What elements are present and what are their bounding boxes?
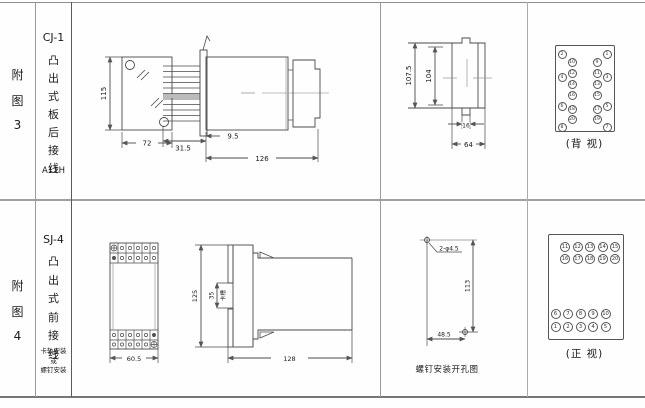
terminal-19: 19 — [593, 115, 602, 124]
terminal-11: 11 — [593, 69, 602, 78]
back-view-caption: (背 视) — [537, 136, 632, 151]
bottom-tab — [462, 108, 470, 115]
fig3-row-label-char: 附 — [11, 66, 23, 83]
slot-label: 卡槽 — [219, 290, 227, 302]
front-plate-upper — [228, 245, 233, 283]
dim-label-16: 16 — [462, 123, 470, 130]
wedge-hatch — [260, 252, 274, 338]
terminal-12: 12 — [573, 242, 583, 252]
terminal-14: 14 — [568, 80, 577, 89]
terminal-3: 3 — [603, 73, 612, 82]
terminal-14: 14 — [598, 242, 608, 252]
terminal-18: 18 — [568, 105, 577, 114]
fig3-row-label-char: 3 — [14, 118, 22, 132]
terminal-2: 2 — [563, 322, 573, 332]
dim-label-72: 72 — [143, 140, 152, 148]
dim-label-126: 126 — [255, 155, 269, 163]
dim-label-31.5: 31.5 — [175, 145, 191, 153]
terminal-16: 16 — [568, 91, 577, 100]
hole-spec-label: 2-φ4.5 — [439, 246, 459, 253]
terminal-18: 18 — [585, 254, 595, 264]
terminal-9: 9 — [593, 58, 602, 67]
dim-label-128: 128 — [283, 355, 295, 363]
section-outline — [408, 38, 485, 108]
front-view-caption: (正 视) — [537, 346, 632, 361]
fig4-row-label-char: 图 — [11, 303, 23, 320]
terminal-8: 8 — [558, 123, 567, 132]
dim-label-48.5: 48.5 — [437, 332, 451, 339]
terminal-5: 5 — [601, 322, 611, 332]
hatch-marks — [137, 70, 163, 108]
terminal-pins — [163, 66, 200, 121]
dim-label-104: 104 — [425, 69, 433, 83]
dim-label-115: 115 — [100, 87, 108, 100]
terminal-15: 15 — [593, 91, 602, 100]
terminal-1: 1 — [551, 322, 561, 332]
terminal-13: 13 — [593, 80, 602, 89]
terminal-2: 2 — [558, 50, 567, 59]
fig4-row-label-char: 附 — [11, 277, 23, 294]
relay-body-side — [233, 245, 253, 347]
dim-label-64: 64 — [464, 141, 473, 149]
back-view-terminal-box: 2468101214161820911131517191357 — [555, 45, 615, 132]
front-plate-lower — [228, 309, 233, 347]
fig3-section-drawing: 107.5 104 16 64 — [380, 2, 527, 198]
dim-label-125: 125 — [191, 290, 199, 302]
fig3-dimension-drawing: 115 72 31.5 9.5 126 — [71, 2, 380, 198]
terminal-13: 13 — [585, 242, 595, 252]
front-view-terminal-box: 1112131415161718192067891012345 — [548, 234, 624, 340]
terminal-17: 17 — [573, 254, 583, 264]
dim-label-35: 35 — [209, 292, 216, 300]
terminal-1: 1 — [603, 50, 612, 59]
fig4-drill-hole-drawing: 2-φ4.5 113 48.5 螺钉安装开孔图 — [380, 200, 527, 396]
fig3-title: 凸出 式板 后接 线 — [36, 52, 71, 176]
terminal-20: 20 — [568, 115, 577, 124]
terminal-12: 12 — [568, 69, 577, 78]
terminal-10: 10 — [568, 58, 577, 67]
fig4-row-label-char: 4 — [14, 329, 22, 343]
terminal-4: 4 — [588, 322, 598, 332]
fig3-row-label: 附 图 3 — [0, 66, 35, 132]
terminal-7: 7 — [603, 123, 612, 132]
drill-diagram-caption: 螺钉安装开孔图 — [415, 364, 478, 375]
dim-label-113: 113 — [464, 280, 472, 292]
terminal-10: 10 — [601, 309, 611, 319]
table-border-bottom — [0, 396, 645, 398]
terminal-20: 20 — [610, 254, 620, 264]
fig3-row-label-char: 图 — [11, 92, 23, 109]
terminal-16: 16 — [560, 254, 570, 264]
fig4-title: 凸出 式前 接线 — [36, 253, 71, 362]
dim-label-60.5: 60.5 — [127, 355, 141, 363]
mounting-hole — [160, 118, 169, 127]
terminal-strip-cells — [118, 243, 150, 349]
fig4-mount-note: 卡轨安装 或 螺钉安装 — [32, 347, 75, 376]
terminal-8: 8 — [576, 309, 586, 319]
fig4-dimension-drawing: 60.5 125 35 卡槽 128 — [71, 200, 380, 396]
table-col-divider-4 — [527, 2, 528, 397]
terminal-5: 5 — [603, 102, 612, 111]
terminal-17: 17 — [593, 105, 602, 114]
relay-body-side — [206, 57, 288, 130]
terminal-7: 7 — [563, 309, 573, 319]
dim-label-107.5: 107.5 — [405, 65, 413, 85]
terminal-6: 6 — [551, 309, 561, 319]
terminal-15: 15 — [610, 242, 620, 252]
fig4-row-label: 附 图 4 — [0, 277, 35, 343]
dim-label-9.5: 9.5 — [227, 133, 238, 141]
rear-cover — [293, 60, 320, 127]
fig3-code: A11H — [36, 166, 71, 176]
fig3-model: CJ-1 — [36, 31, 71, 44]
terminal-19: 19 — [598, 254, 608, 264]
terminal-6: 6 — [558, 102, 567, 111]
terminal-9: 9 — [588, 309, 598, 319]
terminal-3: 3 — [576, 322, 586, 332]
terminal-11: 11 — [560, 242, 570, 252]
manual-page: 附 图 3 CJ-1 凸出 式板 后接 线 A11H — [0, 0, 645, 408]
mounting-hole — [126, 61, 135, 70]
fig4-model: SJ-4 — [36, 233, 71, 246]
terminal-4: 4 — [558, 73, 567, 82]
